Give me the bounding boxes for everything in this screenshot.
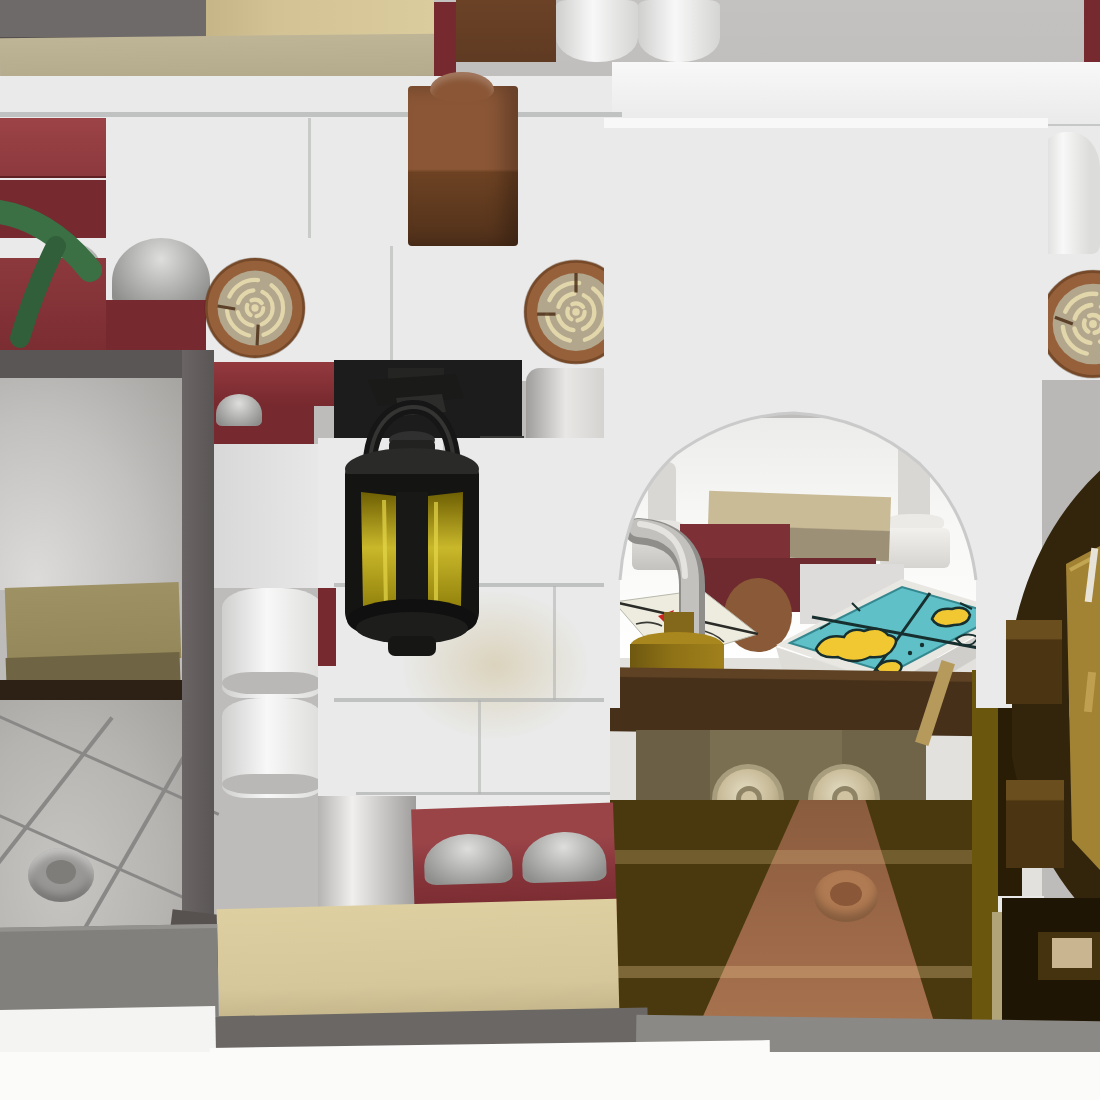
- round-white-brick-top: [556, 0, 638, 62]
- round-brown-tile-ring: [830, 882, 862, 906]
- brown-block-top: [456, 0, 556, 62]
- brown-stud: [430, 72, 494, 102]
- door-frame-post: [182, 350, 214, 980]
- dark-red-post-top: [434, 2, 456, 76]
- silver-column: [318, 796, 416, 920]
- tile-seam: [356, 792, 616, 795]
- log-end-brick: [203, 256, 307, 360]
- reddish-brown-stud-brick: [408, 86, 518, 246]
- tile-seam: [478, 700, 481, 794]
- round-white-brick-band: [222, 774, 322, 794]
- black-lantern: [332, 368, 492, 668]
- green-leaf-element: [0, 178, 130, 358]
- inverted-gray-dish: [216, 394, 262, 426]
- tile-seam: [553, 586, 556, 700]
- dark-gray-block: [0, 0, 206, 40]
- dark-red-post-topright: [1084, 0, 1100, 64]
- tan-brick-top: [206, 0, 434, 38]
- brick-seam: [390, 246, 393, 368]
- door-inner-panel: [0, 378, 182, 590]
- lego-render-scene: [0, 0, 1100, 1100]
- white-foreground-wedge: [210, 1040, 771, 1088]
- brown-ledge: [1006, 780, 1064, 868]
- brown-ledge: [1006, 620, 1062, 704]
- floor-highlight-strip: [610, 850, 1022, 864]
- tan-base-band: [217, 899, 620, 1025]
- gray-platform-left: [0, 924, 219, 1020]
- brick-seam: [0, 112, 622, 117]
- khaki-ledge: [0, 34, 436, 83]
- floor-highlight-strip: [610, 966, 1022, 978]
- hollow-stud-hole: [46, 860, 76, 884]
- arched-opening-wall: [604, 118, 1048, 708]
- tile-seam: [334, 698, 616, 702]
- tan-platform: [5, 582, 182, 664]
- tan-notch: [1052, 938, 1092, 968]
- round-white-brick-top: [638, 0, 720, 62]
- dark-red-brick: [0, 118, 106, 178]
- wall-ledge-highlight: [612, 62, 1100, 126]
- round-white-brick-band: [222, 672, 322, 694]
- brick-seam: [308, 118, 311, 238]
